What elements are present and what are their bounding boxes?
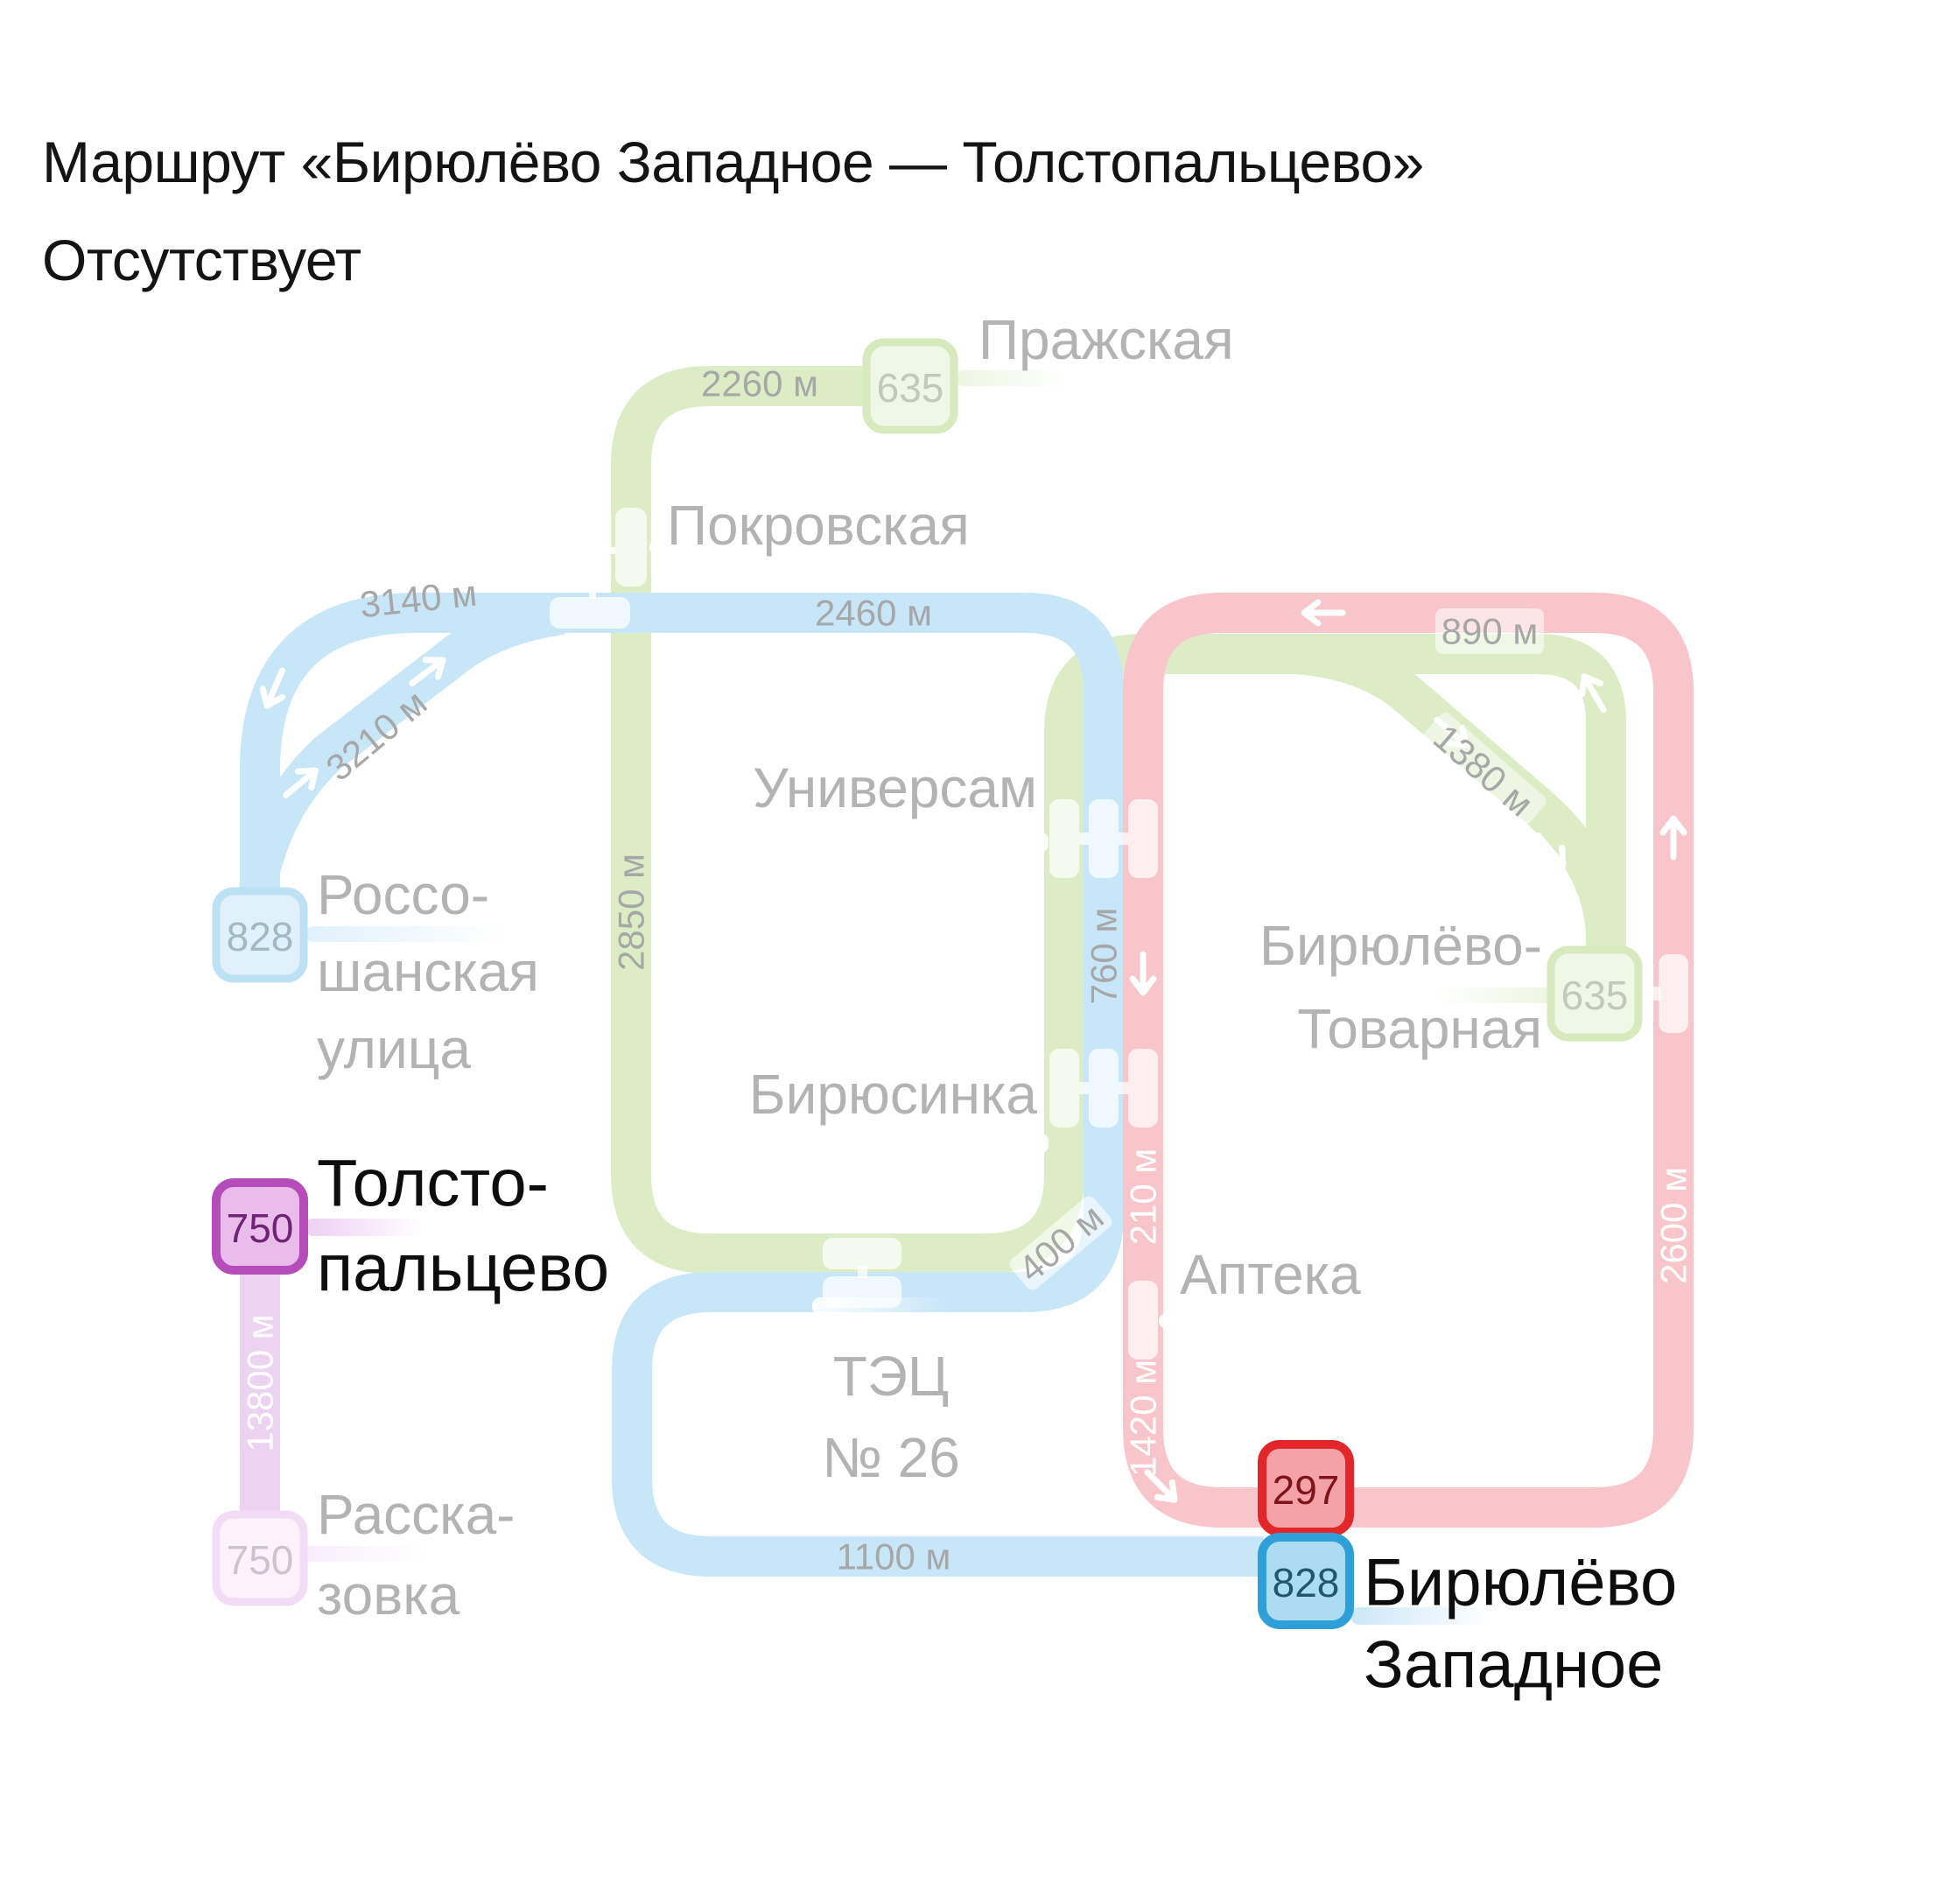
- badge-828-biryulyovo-zapadnoye: 828: [1262, 1537, 1350, 1625]
- svg-text:828: 828: [1273, 1560, 1340, 1605]
- svg-text:Товарная: Товарная: [1297, 997, 1542, 1060]
- svg-text:750: 750: [227, 1205, 294, 1251]
- stop-pokrovskaya-interchange: [550, 597, 630, 629]
- stop-biryusinka-stem-1: [1079, 1082, 1089, 1094]
- page-title-line1: Маршрут «Бирюлёво Западное — Толстопальц…: [42, 130, 1424, 194]
- page-title: Маршрут «Бирюлёво Западное — Толстопальц…: [42, 130, 1424, 292]
- svg-text:улица: улица: [317, 1017, 471, 1080]
- stop-tovarnaya-red: [1659, 954, 1688, 1033]
- stop-universam-red: [1128, 799, 1158, 878]
- tail-rasskazovka: [293, 1546, 424, 1562]
- badge-750-rasskazovka: 750: [216, 1514, 304, 1602]
- station-label-biryusinka: Бирюсинка: [749, 1063, 1038, 1126]
- svg-text:Бирюлёво: Бирюлёво: [1364, 1546, 1677, 1620]
- tail-universam: [894, 832, 1049, 853]
- svg-text:297: 297: [1273, 1467, 1340, 1513]
- stop-pokrovskaya: [615, 508, 647, 587]
- distance-label-890: 890 м: [1441, 611, 1539, 652]
- svg-text:зовка: зовка: [317, 1563, 460, 1626]
- station-label-apteka: Аптека: [1180, 1243, 1361, 1306]
- svg-text:635: 635: [1561, 973, 1629, 1018]
- badge-297-biryulyovo-zapadnoye: 297: [1262, 1444, 1350, 1532]
- station-label-rossoshanskaya: Россо- шанская улица: [317, 863, 539, 1080]
- stop-tec-green: [823, 1238, 901, 1269]
- station-label-biryulyovo-tovarnaya: Бирюлёво- Товарная: [1259, 914, 1542, 1060]
- station-labels-faded: Пражская Покровская Универсам Бирюсинка …: [317, 308, 1542, 1626]
- badge-828-rossoshanskaya: 828: [216, 891, 304, 979]
- svg-text:Толсто-: Толсто-: [317, 1147, 549, 1221]
- tail-prazhskaya: [956, 370, 1070, 386]
- distance-label-13800: 13800 м: [240, 1314, 281, 1451]
- distance-label-760: 760 м: [1084, 908, 1125, 1005]
- station-label-tec-26: ТЭЦ № 26: [822, 1345, 960, 1489]
- stop-universam-blue: [1089, 799, 1119, 878]
- station-label-universam: Универсам: [753, 756, 1037, 819]
- distance-label-2260: 2260 м: [701, 363, 818, 404]
- badge-635-tovarnaya: 635: [1551, 950, 1638, 1037]
- svg-text:635: 635: [877, 365, 944, 411]
- stop-biryusinka-blue: [1089, 1049, 1119, 1128]
- badge-635-prazhskaya: 635: [866, 342, 954, 430]
- svg-text:Западное: Западное: [1364, 1628, 1663, 1703]
- stop-biryusinka-stem-2: [1119, 1082, 1128, 1094]
- distance-label-2460: 2460 м: [815, 593, 932, 634]
- svg-text:шанская: шанская: [317, 940, 539, 1003]
- transit-scheme-canvas: 2260 м 3140 м 3210 м 2460 м 2850 м 890 м…: [0, 0, 1957, 1904]
- svg-text:Бирюлёво-: Бирюлёво-: [1259, 914, 1542, 977]
- tail-biryusinka: [894, 1133, 1049, 1154]
- svg-text:№ 26: № 26: [822, 1426, 960, 1489]
- route-scheme-screen: 2260 м 3140 м 3210 м 2460 м 2850 м 890 м…: [0, 0, 1957, 1904]
- stop-tec-blue: [823, 1276, 901, 1308]
- station-labels-active: Толсто- пальцево Бирюлёво Западное: [317, 1147, 1677, 1703]
- stop-biryusinka-green: [1049, 1049, 1079, 1128]
- svg-text:ТЭЦ: ТЭЦ: [833, 1345, 949, 1408]
- page-title-line2: Отсутствует: [42, 228, 361, 292]
- tail-apteka: [1159, 1313, 1281, 1329]
- distance-label-1420: 1420 м: [1123, 1359, 1164, 1477]
- stop-biryusinka-red: [1128, 1049, 1158, 1128]
- svg-text:750: 750: [227, 1537, 294, 1583]
- svg-text:Россо-: Россо-: [317, 863, 489, 926]
- distance-label-2600: 2600 м: [1653, 1167, 1694, 1284]
- svg-text:Расска-: Расска-: [317, 1483, 515, 1546]
- stop-apteka: [1128, 1281, 1158, 1359]
- station-label-pokrovskaya: Покровская: [667, 494, 970, 557]
- badge-750-tolstopaltsevo: 750: [216, 1183, 304, 1270]
- stop-universam-stem-1: [1079, 833, 1089, 845]
- stop-tec-stem: [858, 1266, 867, 1278]
- distance-label-2850: 2850 м: [611, 854, 652, 971]
- stop-universam-green: [1049, 799, 1079, 878]
- distance-label-1100: 1100 м: [837, 1536, 951, 1577]
- route-635-diagonal-branch: [1295, 654, 1606, 941]
- svg-text:пальцево: пальцево: [317, 1232, 609, 1306]
- svg-text:828: 828: [227, 914, 294, 959]
- station-label-prazhskaya: Пражская: [978, 308, 1234, 371]
- stop-universam-stem-2: [1119, 833, 1128, 845]
- distance-label-210: 210 м: [1123, 1149, 1164, 1246]
